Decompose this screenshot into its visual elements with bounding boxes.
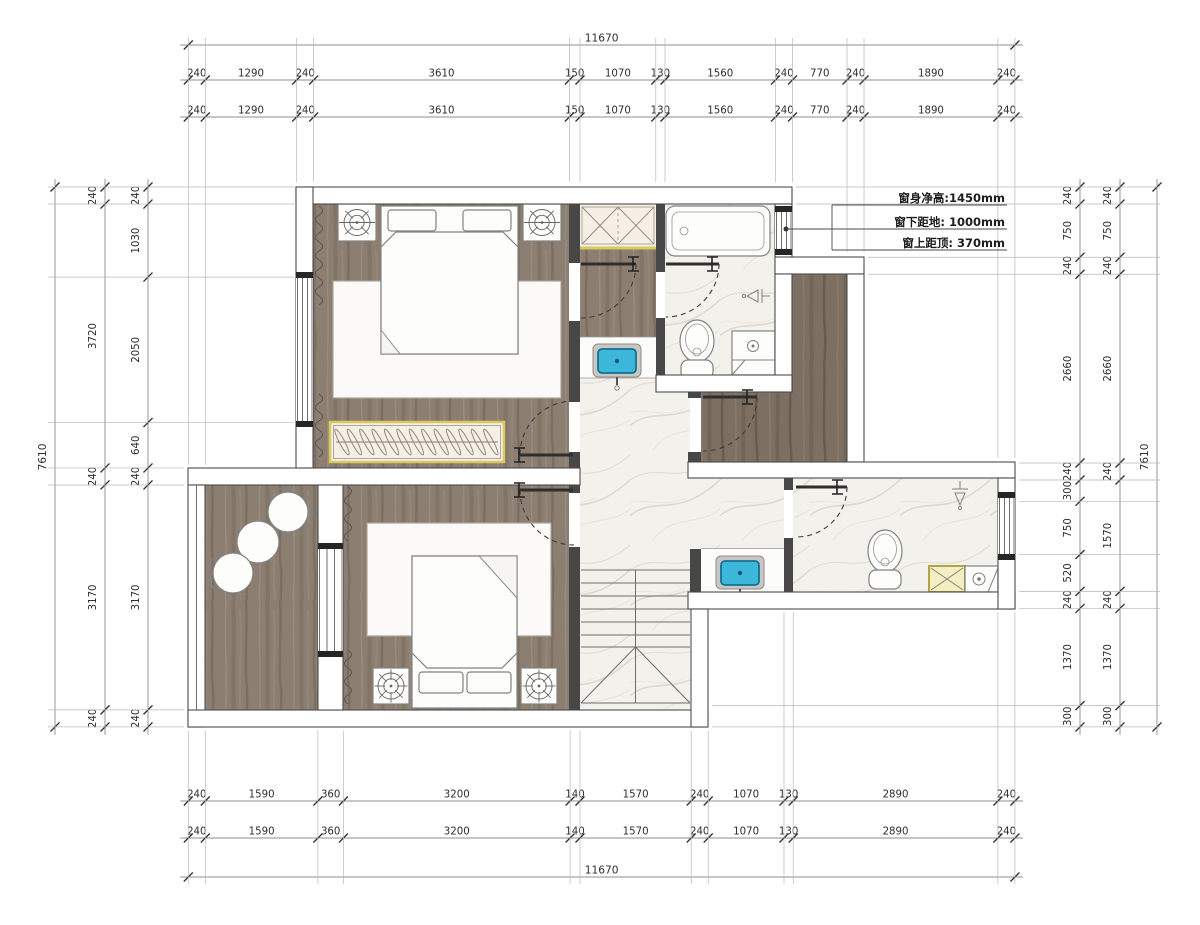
svg-text:1030: 1030	[131, 228, 142, 254]
svg-text:750: 750	[1103, 221, 1114, 240]
note-line-1: 窗身净高:1450mm	[898, 191, 1005, 205]
wall-step-topright	[775, 257, 864, 274]
wall-bath2-left-b	[784, 538, 793, 592]
closet-cabinet-top	[578, 203, 658, 248]
svg-text:3200: 3200	[444, 790, 470, 801]
wall-bath1-left-a	[656, 204, 665, 272]
svg-text:300: 300	[1063, 481, 1074, 500]
svg-text:1560: 1560	[707, 106, 733, 117]
wall-bath1-left-b	[656, 318, 665, 375]
armchair	[268, 492, 308, 532]
faucet-dot	[752, 345, 755, 348]
wall-closet-cap-b	[688, 452, 701, 462]
svg-text:130: 130	[779, 827, 798, 838]
svg-text:520: 520	[1063, 563, 1074, 582]
svg-text:3170: 3170	[131, 584, 142, 610]
svg-text:770: 770	[810, 69, 829, 80]
wall-bath2-left-a	[784, 478, 793, 490]
dim-chain-v: 7610	[37, 179, 60, 735]
svg-text:3720: 3720	[88, 323, 99, 349]
svg-text:360: 360	[321, 827, 340, 838]
svg-text:640: 640	[131, 436, 142, 455]
wall-master-right-b	[569, 321, 580, 402]
lamp-icon	[375, 670, 408, 703]
svg-text:240: 240	[846, 106, 865, 117]
svg-text:2050: 2050	[131, 337, 142, 363]
note-line-3: 窗上距顶: 370mm	[902, 236, 1005, 250]
window-bedroom2	[318, 543, 343, 657]
dim-chain-h: 11670	[180, 865, 1023, 882]
svg-text:1570: 1570	[623, 827, 649, 838]
svg-text:1570: 1570	[623, 790, 649, 801]
svg-text:240: 240	[1103, 462, 1114, 481]
dim-chain-v: 240750240266024015702401370300	[1103, 179, 1125, 735]
dim-chain-h: 2401290240361015010701301560240770240189…	[180, 69, 1023, 85]
svg-text:240: 240	[131, 186, 142, 205]
wall-top	[296, 187, 792, 204]
svg-text:11670: 11670	[585, 33, 619, 45]
svg-text:140: 140	[565, 827, 584, 838]
svg-text:3170: 3170	[88, 584, 99, 610]
svg-text:1560: 1560	[707, 69, 733, 80]
svg-text:240: 240	[774, 106, 793, 117]
svg-text:240: 240	[187, 106, 206, 117]
bathtub	[666, 206, 770, 256]
wall-closet-cap-a	[688, 392, 701, 398]
wall-master-right-a	[569, 204, 580, 263]
svg-text:7610: 7610	[37, 443, 49, 470]
svg-text:240: 240	[131, 467, 142, 486]
svg-text:240: 240	[1063, 590, 1074, 609]
window-bath1	[775, 206, 792, 255]
svg-text:240: 240	[690, 790, 709, 801]
svg-text:150: 150	[565, 69, 584, 80]
dim-chain-v: 24037202403170240	[88, 179, 110, 735]
note-line-2: 窗下距地: 1000mm	[894, 215, 1005, 229]
svg-text:240: 240	[187, 827, 206, 838]
svg-text:2890: 2890	[883, 790, 909, 801]
washbasin-dot	[977, 577, 981, 581]
svg-text:11670: 11670	[585, 865, 619, 877]
window-bath2	[998, 492, 1015, 560]
duvet	[381, 232, 518, 354]
svg-text:240: 240	[997, 827, 1016, 838]
wall-pier	[775, 274, 792, 392]
window-master-left	[296, 272, 313, 427]
svg-text:1370: 1370	[1103, 644, 1114, 670]
svg-text:1890: 1890	[918, 69, 944, 80]
wall-bottom-right-column	[691, 609, 708, 727]
svg-text:3200: 3200	[444, 827, 470, 838]
svg-text:240: 240	[1063, 462, 1074, 481]
svg-text:240: 240	[187, 69, 206, 80]
dim-chain-v: 240103020506402403170240	[131, 179, 153, 735]
armchair	[213, 553, 253, 593]
svg-text:240: 240	[295, 106, 314, 117]
svg-text:240: 240	[131, 709, 142, 728]
wall-bath2-bottom	[688, 592, 1015, 609]
svg-text:240: 240	[997, 69, 1016, 80]
svg-text:300: 300	[1103, 707, 1114, 726]
svg-text:2660: 2660	[1103, 356, 1114, 382]
vanity-cabinet	[732, 331, 775, 375]
svg-text:240: 240	[997, 790, 1016, 801]
svg-text:2660: 2660	[1063, 356, 1074, 382]
svg-text:240: 240	[1063, 186, 1074, 205]
svg-text:150: 150	[565, 106, 584, 117]
svg-text:240: 240	[690, 827, 709, 838]
wall-right-closet	[847, 274, 864, 462]
dim-chain-h: 24015903603200140157024010701302890240	[180, 790, 1023, 806]
dim-chain-v: 7610	[1139, 179, 1162, 735]
svg-text:1070: 1070	[733, 827, 759, 838]
dim-chain-h: 11670	[180, 33, 1023, 50]
svg-text:1890: 1890	[918, 106, 944, 117]
svg-text:750: 750	[1063, 221, 1074, 240]
svg-text:1590: 1590	[249, 827, 275, 838]
svg-text:2890: 2890	[883, 827, 909, 838]
dressing-hall-floor	[580, 247, 656, 337]
svg-text:1290: 1290	[238, 69, 264, 80]
svg-text:1590: 1590	[249, 790, 275, 801]
floorplan-canvas: 1167024012902403610150107013015602407702…	[0, 0, 1200, 925]
svg-text:1070: 1070	[605, 69, 631, 80]
svg-text:1290: 1290	[238, 106, 264, 117]
svg-text:240: 240	[187, 790, 206, 801]
svg-text:240: 240	[88, 467, 99, 486]
svg-text:770: 770	[810, 106, 829, 117]
svg-text:1070: 1070	[605, 106, 631, 117]
svg-text:3610: 3610	[429, 69, 455, 80]
wall-stairs-left-b	[569, 547, 580, 710]
floorplan-drawing: 1167024012902403610150107013015602407702…	[0, 0, 1200, 925]
svg-text:240: 240	[1103, 590, 1114, 609]
svg-text:130: 130	[651, 69, 670, 80]
svg-text:130: 130	[651, 106, 670, 117]
svg-text:240: 240	[295, 69, 314, 80]
svg-text:240: 240	[88, 186, 99, 205]
svg-text:240: 240	[1103, 256, 1114, 275]
svg-text:360: 360	[321, 790, 340, 801]
toilet-tank	[869, 570, 901, 589]
svg-text:240: 240	[774, 69, 793, 80]
lamp-icon	[523, 670, 556, 703]
pillow	[467, 672, 511, 693]
svg-text:130: 130	[779, 790, 798, 801]
svg-text:1070: 1070	[733, 790, 759, 801]
pillow	[419, 672, 463, 693]
svg-text:750: 750	[1063, 518, 1074, 537]
svg-text:240: 240	[1103, 186, 1114, 205]
svg-text:300: 300	[1063, 707, 1074, 726]
svg-text:240: 240	[846, 69, 865, 80]
wall-bottom	[188, 710, 708, 727]
pillow	[388, 210, 436, 231]
svg-text:240: 240	[1063, 256, 1074, 275]
svg-text:240: 240	[88, 709, 99, 728]
window-height-note: 窗身净高:1450mm 窗下距地: 1000mm 窗上距顶: 370mm	[784, 191, 1008, 250]
svg-text:140: 140	[565, 790, 584, 801]
svg-text:1570: 1570	[1103, 523, 1114, 549]
wall-bath2-top	[688, 462, 1015, 478]
svg-text:7610: 7610	[1139, 443, 1151, 470]
sink-blue-2	[716, 556, 764, 595]
svg-text:3610: 3610	[429, 106, 455, 117]
wall-alcove2-left	[690, 549, 701, 592]
svg-text:240: 240	[997, 106, 1016, 117]
svg-text:1370: 1370	[1063, 644, 1074, 670]
dim-chain-h: 24015903603200140157024010701302890240	[180, 827, 1023, 843]
pillow	[463, 210, 511, 231]
wall-bath1-bottom	[656, 375, 792, 392]
dim-chain-h: 2401290240361015010701301560240770240189…	[180, 106, 1023, 122]
dim-chain-v: 24075024026602403007505202401370300	[1063, 179, 1085, 735]
